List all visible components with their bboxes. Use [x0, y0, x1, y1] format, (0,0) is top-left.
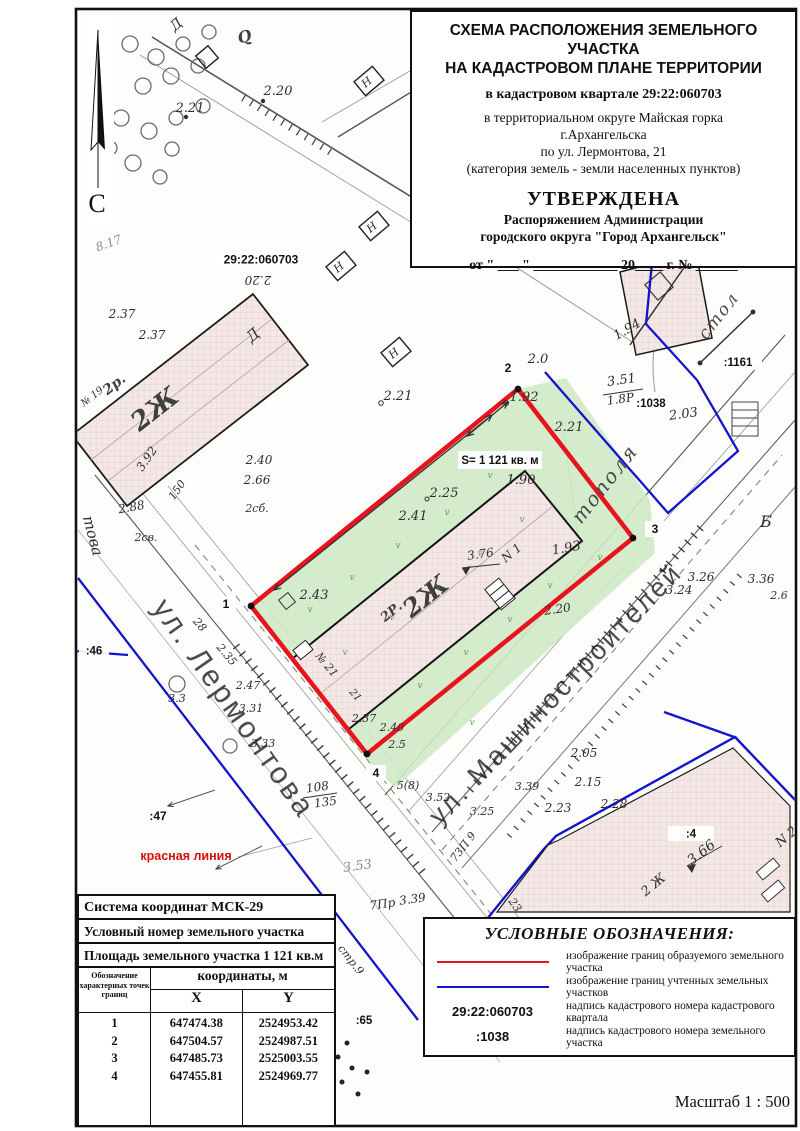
boxed-label: 3	[652, 522, 659, 536]
legend: УСЛОВНЫЕ ОБОЗНАЧЕНИЯ: изображение границ…	[423, 917, 796, 1057]
map-label: 3.36	[748, 572, 775, 586]
red-line-swatch	[437, 961, 549, 963]
title-quarter: в кадастровом квартале 29:22:060703	[412, 87, 795, 103]
boxed-label: 2	[505, 361, 512, 375]
points-column-header: Обозначение характерных точек границ	[79, 968, 151, 1012]
map-label: v	[547, 581, 552, 591]
boxed-label: :1161	[724, 357, 753, 369]
x-value-cell: 647455.81	[151, 1068, 242, 1086]
coord-table-header: Обозначение характерных точек границ коо…	[79, 968, 334, 1013]
legend-text: изображение границ учтенных земельных уч…	[560, 975, 794, 999]
conditional-number-row: Условный номер земельного участка	[79, 920, 334, 944]
title-district2: г.Архангельска	[412, 126, 795, 143]
y-value-column: 2524953.422524987.512525003.552524969.77	[243, 1013, 335, 1125]
map-label: 3.3	[168, 692, 186, 705]
map-label: v	[487, 471, 492, 481]
y-value-cell: 2524987.51	[243, 1033, 335, 1051]
legend-item: 29:22:060703надпись кадастрового номера …	[425, 999, 794, 1024]
scale-label: Масштаб 1 : 500	[640, 1092, 790, 1112]
boxed-label: :65	[356, 1015, 373, 1027]
legend-items: изображение границ образуемого земельног…	[425, 949, 794, 1049]
map-label: v	[597, 553, 602, 563]
map-label: красная линия	[140, 849, 231, 863]
map-label: v	[469, 718, 474, 728]
map-label: 2.28	[600, 797, 628, 811]
x-value-cell: 647474.38	[151, 1015, 242, 1033]
map-label: v	[342, 648, 347, 658]
map-label: 2сб.	[244, 502, 268, 515]
point-number-cell: 3	[79, 1050, 150, 1068]
title-district1: в территориальном округе Майская горка	[412, 109, 795, 126]
map-label: 2.40	[245, 453, 273, 467]
legend-item: изображение границ образуемого земельног…	[425, 949, 794, 974]
point-number-cell: 2	[79, 1033, 150, 1051]
map-label: v	[389, 613, 394, 623]
legend-item: :1038надпись кадастрового номера земельн…	[425, 1024, 794, 1049]
map-label: Б	[759, 512, 772, 531]
map-label: 3.26	[688, 570, 715, 584]
map-label: v	[463, 648, 468, 658]
map-label: 2.43	[299, 588, 329, 603]
map-label: v	[349, 573, 354, 583]
map-label: 2.66	[243, 473, 271, 487]
map-label: v	[435, 583, 440, 593]
x-value-column: 647474.38647504.57647485.73647455.81	[151, 1013, 243, 1125]
coord-system-row: Система координат МСК-29	[79, 896, 334, 920]
map-label: v	[395, 541, 400, 551]
map-label: 2.37	[351, 712, 377, 725]
cadastral-scheme-page: 29:22:060703S= 1 121 кв. м1234:46:65:116…	[0, 0, 800, 1131]
map-label: v	[507, 615, 512, 625]
y-value-cell: 2524953.42	[243, 1015, 335, 1033]
legend-symbol: :1038	[425, 1029, 560, 1044]
coordinate-table: Система координат МСК-29 Условный номер …	[77, 894, 336, 1127]
north-label: С	[88, 189, 105, 218]
y-column-header: Y	[243, 990, 334, 1012]
blue-line-swatch	[437, 986, 549, 988]
map-label: 2.23	[544, 801, 572, 815]
legend-item: изображение границ учтенных земельных уч…	[425, 974, 794, 999]
boxed-label: :4	[686, 829, 697, 841]
x-value-cell: 647485.73	[151, 1050, 242, 1068]
map-label: 2.21	[554, 420, 584, 435]
map-label: 1.92	[510, 390, 539, 405]
map-label: v	[307, 605, 312, 615]
map-label: 2.41	[398, 509, 428, 524]
legend-number: :1038	[476, 1029, 509, 1044]
map-label: 3.39	[515, 780, 540, 793]
map-label: 2.37	[138, 328, 166, 342]
title-category: (категория земель - земли населенных пун…	[412, 160, 795, 177]
map-label: 2.5	[387, 738, 406, 751]
boxed-label: :46	[86, 646, 103, 658]
map-label: v	[417, 681, 422, 691]
north-arrow: С	[84, 16, 114, 228]
legend-text: надпись кадастрового номера кадастрового…	[560, 1000, 794, 1024]
x-column-header: X	[151, 990, 243, 1012]
legend-number: 29:22:060703	[452, 1004, 533, 1019]
title-approved-by2: городского округа "Город Архангельск"	[412, 228, 795, 245]
map-label: v	[477, 549, 482, 559]
map-label: 2.0	[527, 352, 549, 367]
map-label: 2.05	[570, 746, 598, 760]
area-row: Площадь земельного участка 1 121 кв.м	[79, 944, 334, 968]
map-label: v	[444, 508, 449, 518]
map-label: 3.25	[470, 805, 495, 818]
map-label: 5(8)	[397, 779, 420, 792]
map-label: 2.37	[108, 307, 136, 321]
coord-table-body: 1234 647474.38647504.57647485.73647455.8…	[79, 1013, 334, 1125]
legend-title: УСЛОВНЫЕ ОБОЗНАЧЕНИЯ:	[425, 924, 794, 944]
map-label: 2.20	[263, 84, 293, 99]
map-label: 2.25	[429, 486, 459, 501]
x-value-cell: 647504.57	[151, 1033, 242, 1051]
legend-text: изображение границ образуемого земельног…	[560, 950, 794, 974]
title-line1: СХЕМА РАСПОЛОЖЕНИЯ ЗЕМЕЛЬНОГО УЧАСТКА	[412, 21, 795, 59]
title-address: по ул. Лермонтова, 21	[412, 143, 795, 160]
title-block: СХЕМА РАСПОЛОЖЕНИЯ ЗЕМЕЛЬНОГО УЧАСТКА НА…	[410, 10, 797, 268]
title-line2: НА КАДАСТРОВОМ ПЛАНЕ ТЕРРИТОРИИ	[412, 59, 795, 78]
legend-symbol	[425, 986, 560, 988]
map-label: 2.21	[175, 101, 205, 116]
y-value-cell: 2525003.55	[243, 1050, 335, 1068]
legend-text: надпись кадастрового номера земельного у…	[560, 1025, 794, 1049]
coords-column-header: координаты, м	[151, 968, 334, 990]
boxed-label: 1	[223, 597, 230, 611]
boxed-label: 4	[373, 766, 380, 780]
boxed-label: S= 1 121 кв. м	[461, 455, 538, 467]
point-number-cell: 4	[79, 1068, 150, 1086]
map-label: 2.21	[383, 389, 413, 404]
boxed-label: 29:22:060703	[224, 253, 299, 267]
map-label: 2св.	[133, 531, 157, 544]
title-approved-by1: Распоряжением Администрации	[412, 211, 795, 228]
title-approved: УТВЕРЖДЕНА	[412, 188, 795, 211]
map-label: 2.6	[769, 589, 788, 602]
legend-symbol	[425, 961, 560, 963]
map-label: 1.90	[507, 473, 536, 488]
point-number-cell: 1	[79, 1015, 150, 1033]
legend-symbol: 29:22:060703	[425, 1004, 560, 1019]
title-date-line: от " ___ " ____________ 20____ г. № ____…	[412, 258, 795, 274]
point-number-column: 1234	[79, 1013, 151, 1125]
map-label: 2.20	[244, 273, 272, 287]
map-label: 2.40	[379, 721, 405, 734]
map-label: :47	[149, 809, 167, 823]
map-label: v	[519, 515, 524, 525]
boxed-label: :1038	[636, 398, 666, 410]
y-value-cell: 2524969.77	[243, 1068, 335, 1086]
map-label: 2.15	[574, 775, 602, 789]
